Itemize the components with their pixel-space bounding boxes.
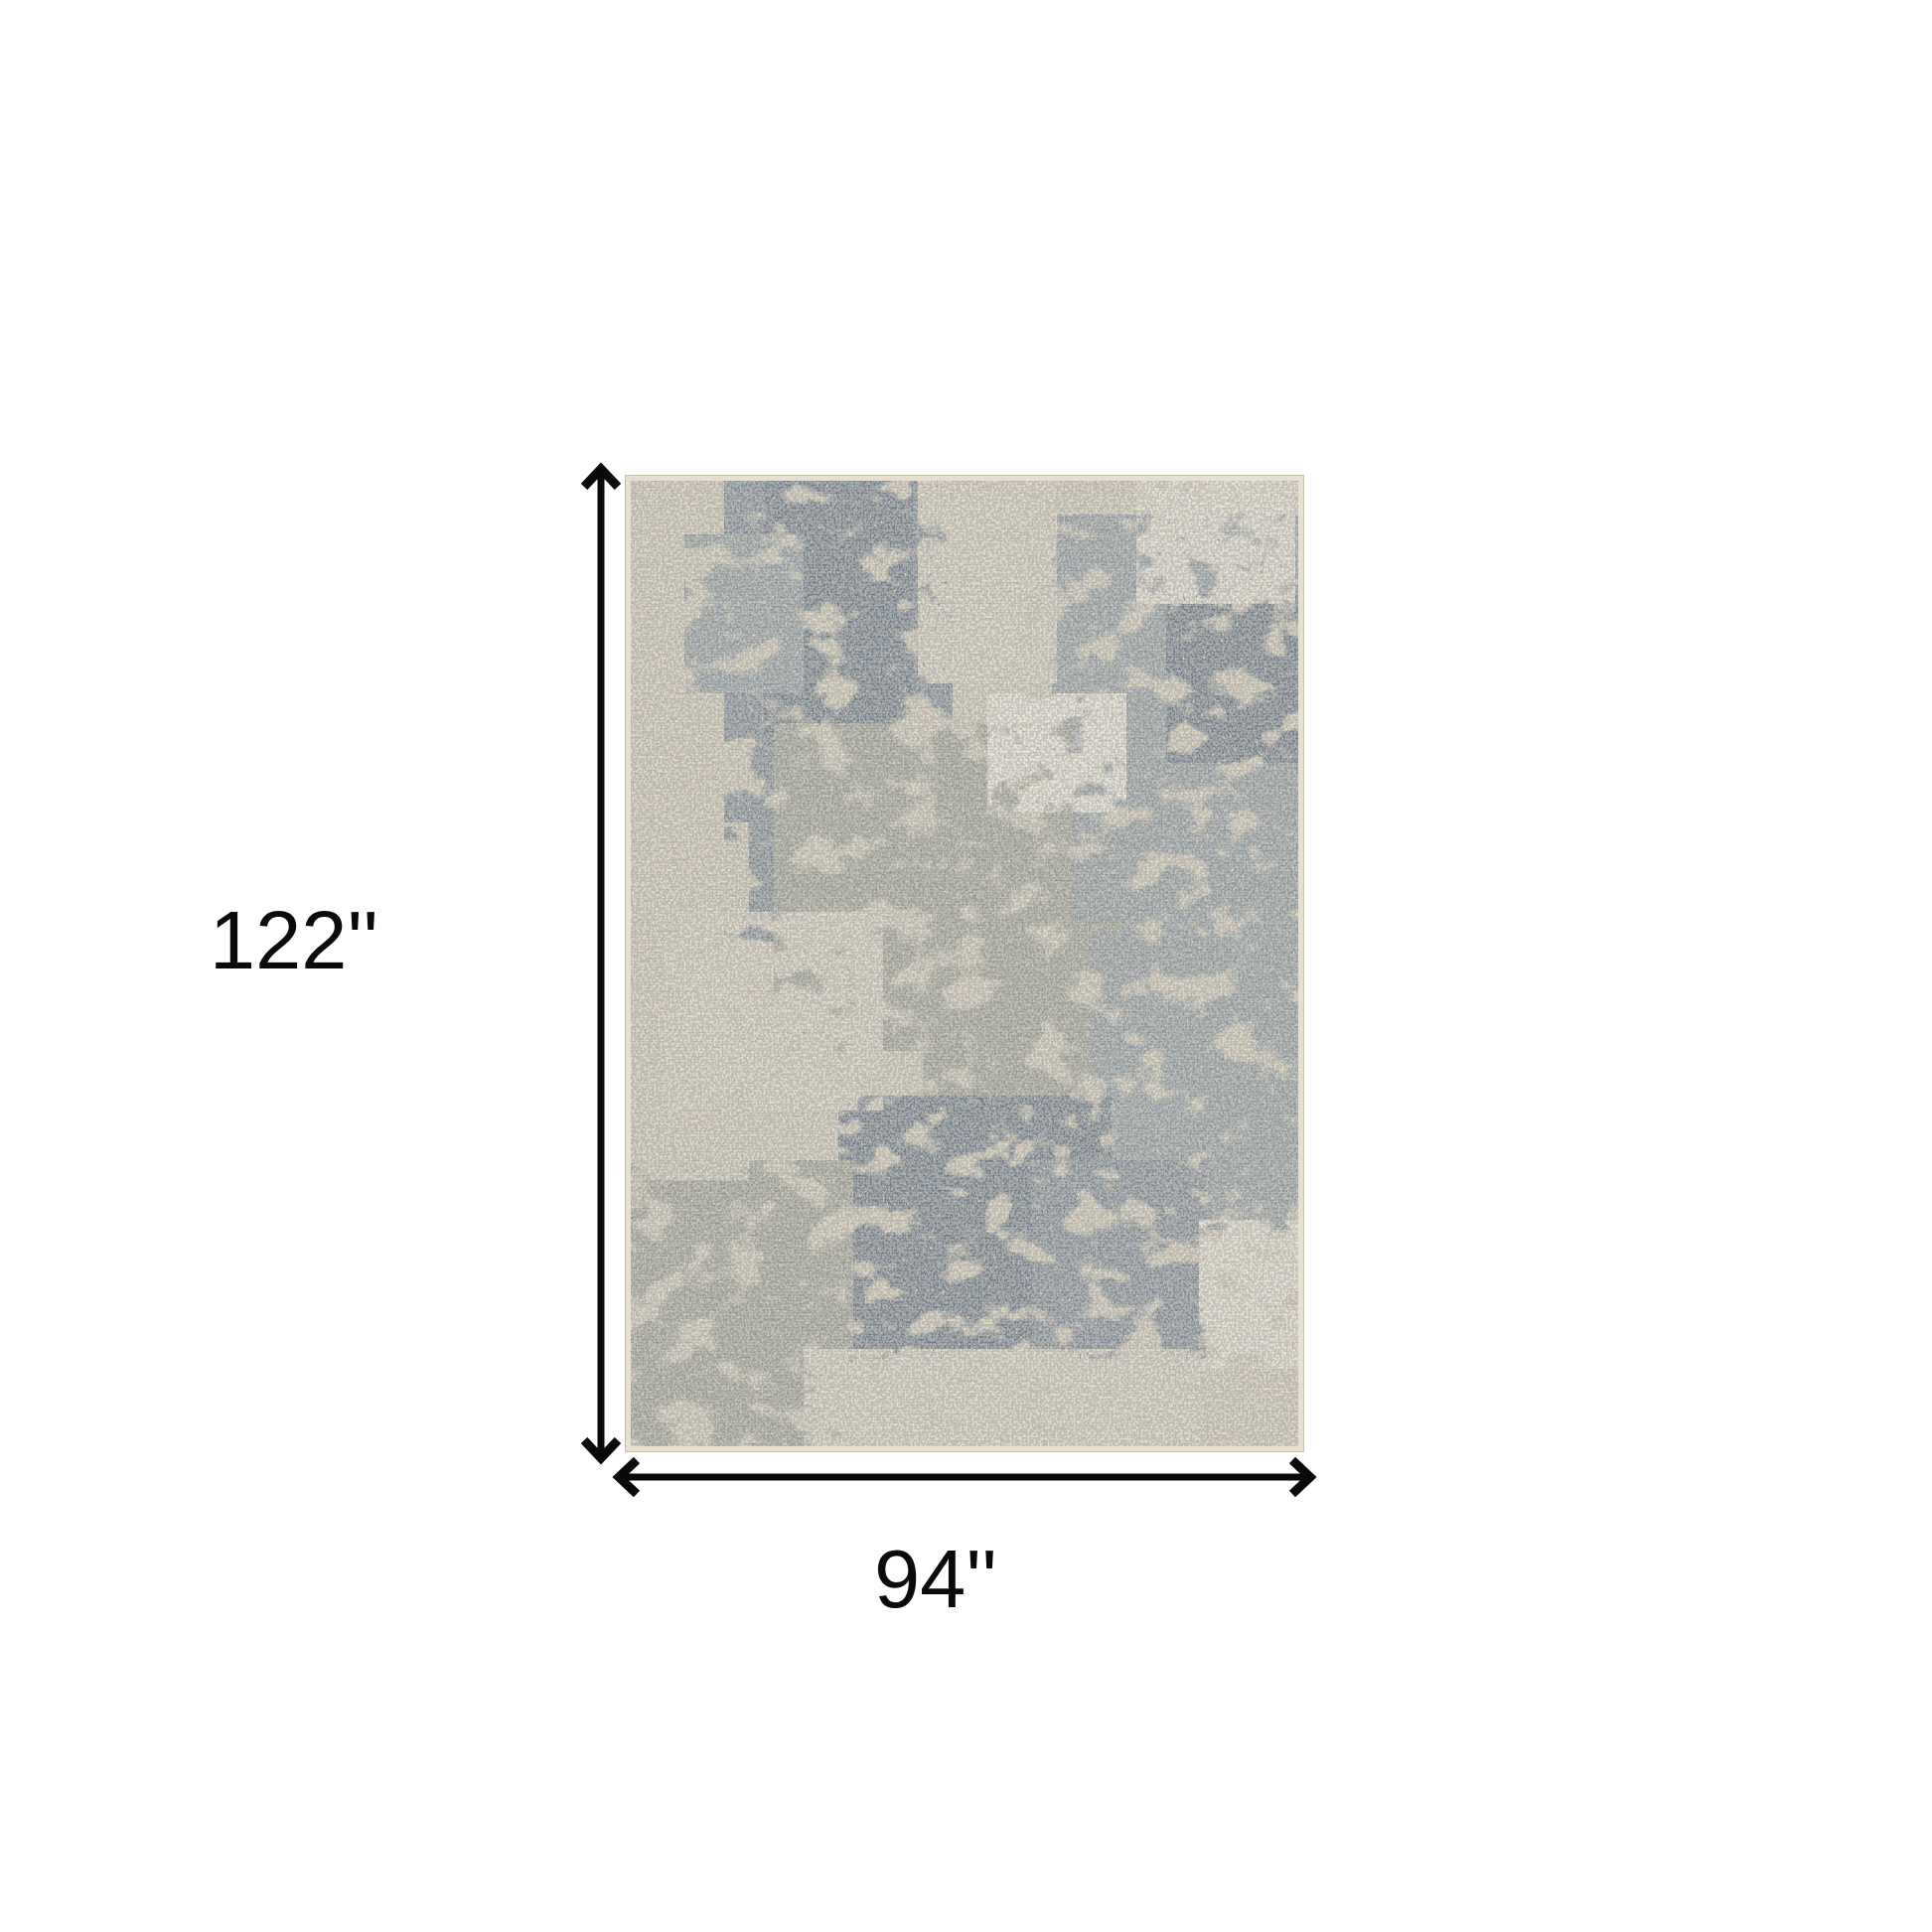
product-dimension-image: 122'' 94'' bbox=[0, 0, 1932, 1932]
rug-image bbox=[625, 475, 1304, 1452]
width-dimension-label: 94'' bbox=[797, 1538, 1075, 1620]
width-dimension-arrow-icon bbox=[608, 1457, 1321, 1497]
height-dimension-label: 122'' bbox=[155, 899, 433, 981]
height-dimension-arrow-icon bbox=[581, 460, 621, 1467]
rug-weave-texture bbox=[625, 475, 1304, 1452]
rug-texture bbox=[625, 475, 1304, 1452]
